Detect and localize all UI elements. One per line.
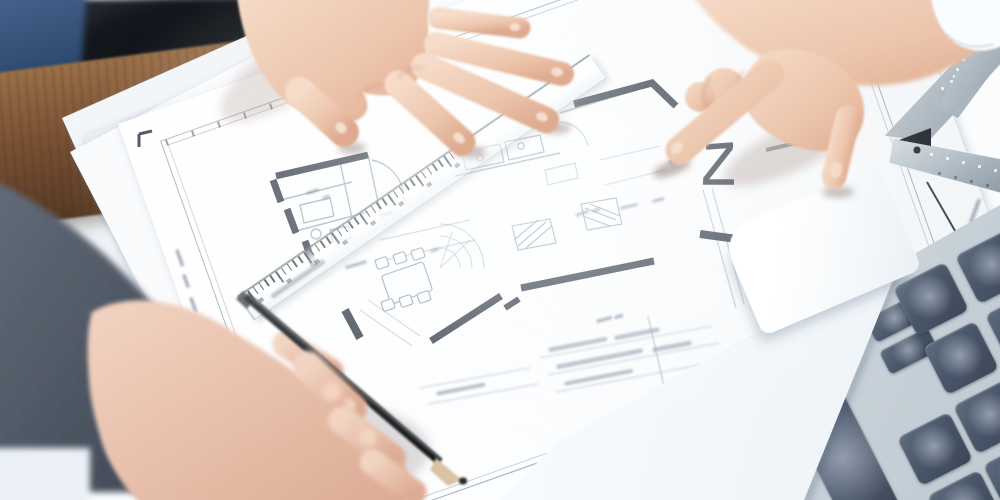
photo-scene: [0, 0, 1000, 500]
pencil-lead: [459, 478, 467, 485]
shirt-corner: [0, 448, 90, 500]
pointing-hand: [668, 0, 1000, 179]
pencil-wood-tip: [430, 458, 462, 486]
hands-layer: [0, 0, 1000, 500]
resting-hand: [236, 0, 564, 146]
writing-hand-group: [0, 178, 467, 500]
